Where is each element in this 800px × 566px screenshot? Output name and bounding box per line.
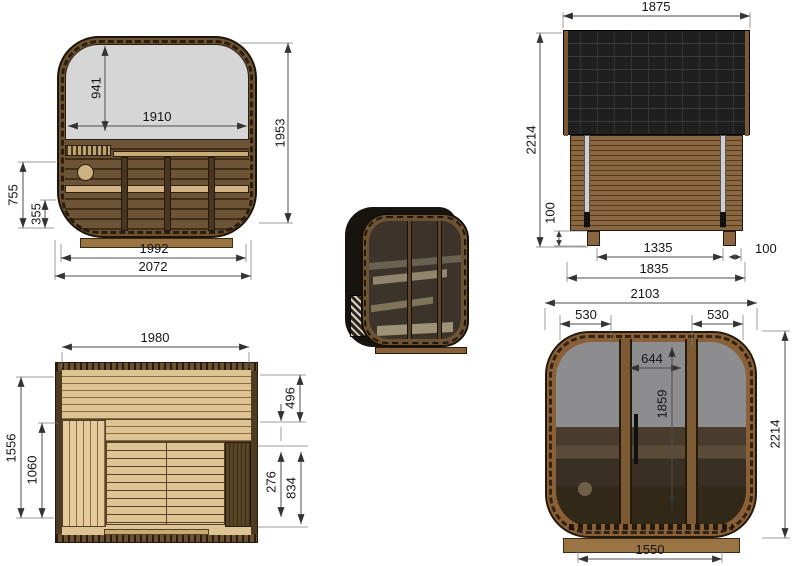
perspective-base-skid — [375, 347, 467, 354]
dim-label: 1060 — [25, 456, 40, 485]
dim-inner-width: 1980 — [62, 330, 249, 347]
side-bench-leg — [164, 157, 171, 231]
rear-roof-edge — [745, 31, 749, 136]
dim-label: 1556 — [4, 434, 19, 463]
plan-door-threshold — [104, 529, 209, 535]
perspective-door-post — [437, 221, 442, 339]
dim-label: 355 — [29, 203, 44, 225]
rear-wall-planks — [570, 135, 743, 231]
rear-skid-foot — [723, 231, 736, 246]
dim-label: 834 — [284, 477, 299, 499]
dim-label: 530 — [575, 307, 597, 322]
dim-label: 530 — [707, 307, 729, 322]
side-window-glass — [65, 44, 249, 140]
side-body — [57, 36, 257, 238]
dim-overall-width: 2072 — [55, 259, 251, 276]
plan-back-bench — [62, 370, 251, 420]
dim-label: 276 — [264, 471, 279, 493]
dim-front-overall-width: 2103 — [545, 286, 757, 303]
dim-heater-zone-width: 276 — [264, 452, 282, 517]
plan-side-bench — [62, 420, 106, 527]
dim-label: 2103 — [631, 286, 660, 301]
rear-corner-channel — [720, 135, 726, 228]
front-glass-panels — [556, 342, 746, 527]
side-bench-leg — [121, 157, 128, 231]
plan-heater-zone — [225, 442, 251, 527]
dim-rear-base-width: 1835 — [567, 261, 745, 278]
perspective-front-face — [361, 213, 469, 347]
dim-roof-width: 1875 — [563, 0, 750, 16]
side-bench-leg — [208, 157, 215, 231]
dim-label: 2214 — [524, 126, 539, 155]
rear-skid-foot — [587, 231, 600, 246]
dim-right-panel-width: 530 — [692, 307, 743, 324]
front-elevation-view — [545, 331, 757, 553]
front-door-post-right — [685, 339, 698, 530]
perspective-bench — [371, 297, 433, 313]
dim-label: 2072 — [139, 259, 168, 274]
perspective-door-post — [407, 221, 412, 339]
perspective-backrest — [369, 255, 461, 270]
perspective-glass — [369, 221, 461, 339]
dim-body-height: 1953 — [273, 43, 289, 223]
side-section-view — [57, 36, 257, 248]
front-heater-circle — [578, 482, 592, 496]
rear-shingle-roof — [563, 30, 750, 135]
dim-left-panel-width: 530 — [560, 307, 611, 324]
rear-elevation-view — [563, 30, 750, 246]
plan-interior — [62, 370, 251, 535]
dim-floor-zone-depth: 834 — [284, 452, 302, 524]
dim-walkway-depth: 1060 — [25, 423, 43, 518]
side-base-skid — [80, 238, 233, 248]
dim-label: 755 — [6, 184, 21, 206]
front-door-handle — [634, 414, 638, 464]
front-door-post-left — [619, 339, 632, 530]
sauna-technical-drawing: 941 1910 1953 755 355 1992 — [0, 0, 800, 566]
dim-bench-back-height: 755 — [6, 162, 24, 228]
dim-label: 1953 — [273, 119, 288, 148]
perspective-3d-view — [345, 203, 473, 355]
dim-label: 100 — [755, 241, 777, 256]
dim-inner-depth: 1556 — [4, 377, 22, 518]
side-bench-board — [65, 185, 249, 193]
side-wall-planks — [65, 140, 249, 230]
dim-label: 1980 — [141, 330, 170, 345]
dim-label: 100 — [543, 202, 558, 224]
floor-plan-view — [55, 362, 258, 543]
plan-floor-boards — [106, 442, 225, 525]
dim-skid-height: 100 — [543, 202, 560, 246]
front-body — [545, 331, 757, 538]
dim-rear-overall-height: 2214 — [524, 33, 541, 247]
rear-roof-edge — [564, 31, 568, 136]
dim-bench-depth: 496 — [281, 375, 300, 422]
side-heater-circle — [77, 164, 94, 181]
plan-back-bench-extension — [106, 420, 251, 442]
dim-label: 1875 — [642, 0, 671, 14]
dim-label: 496 — [283, 387, 298, 409]
rear-corner-channel — [584, 135, 590, 228]
dim-front-overall-height: 2214 — [768, 331, 786, 538]
front-base-platform — [563, 538, 740, 553]
dim-bench-seat-height: 355 — [29, 200, 46, 228]
dim-label: 1835 — [640, 261, 669, 276]
side-upper-bench-board — [113, 151, 249, 157]
plan-wall-hatch — [56, 534, 257, 542]
side-bench-backrest — [65, 145, 111, 156]
front-bottom-notch-strip — [569, 524, 733, 530]
dim-label: 2214 — [768, 420, 783, 449]
